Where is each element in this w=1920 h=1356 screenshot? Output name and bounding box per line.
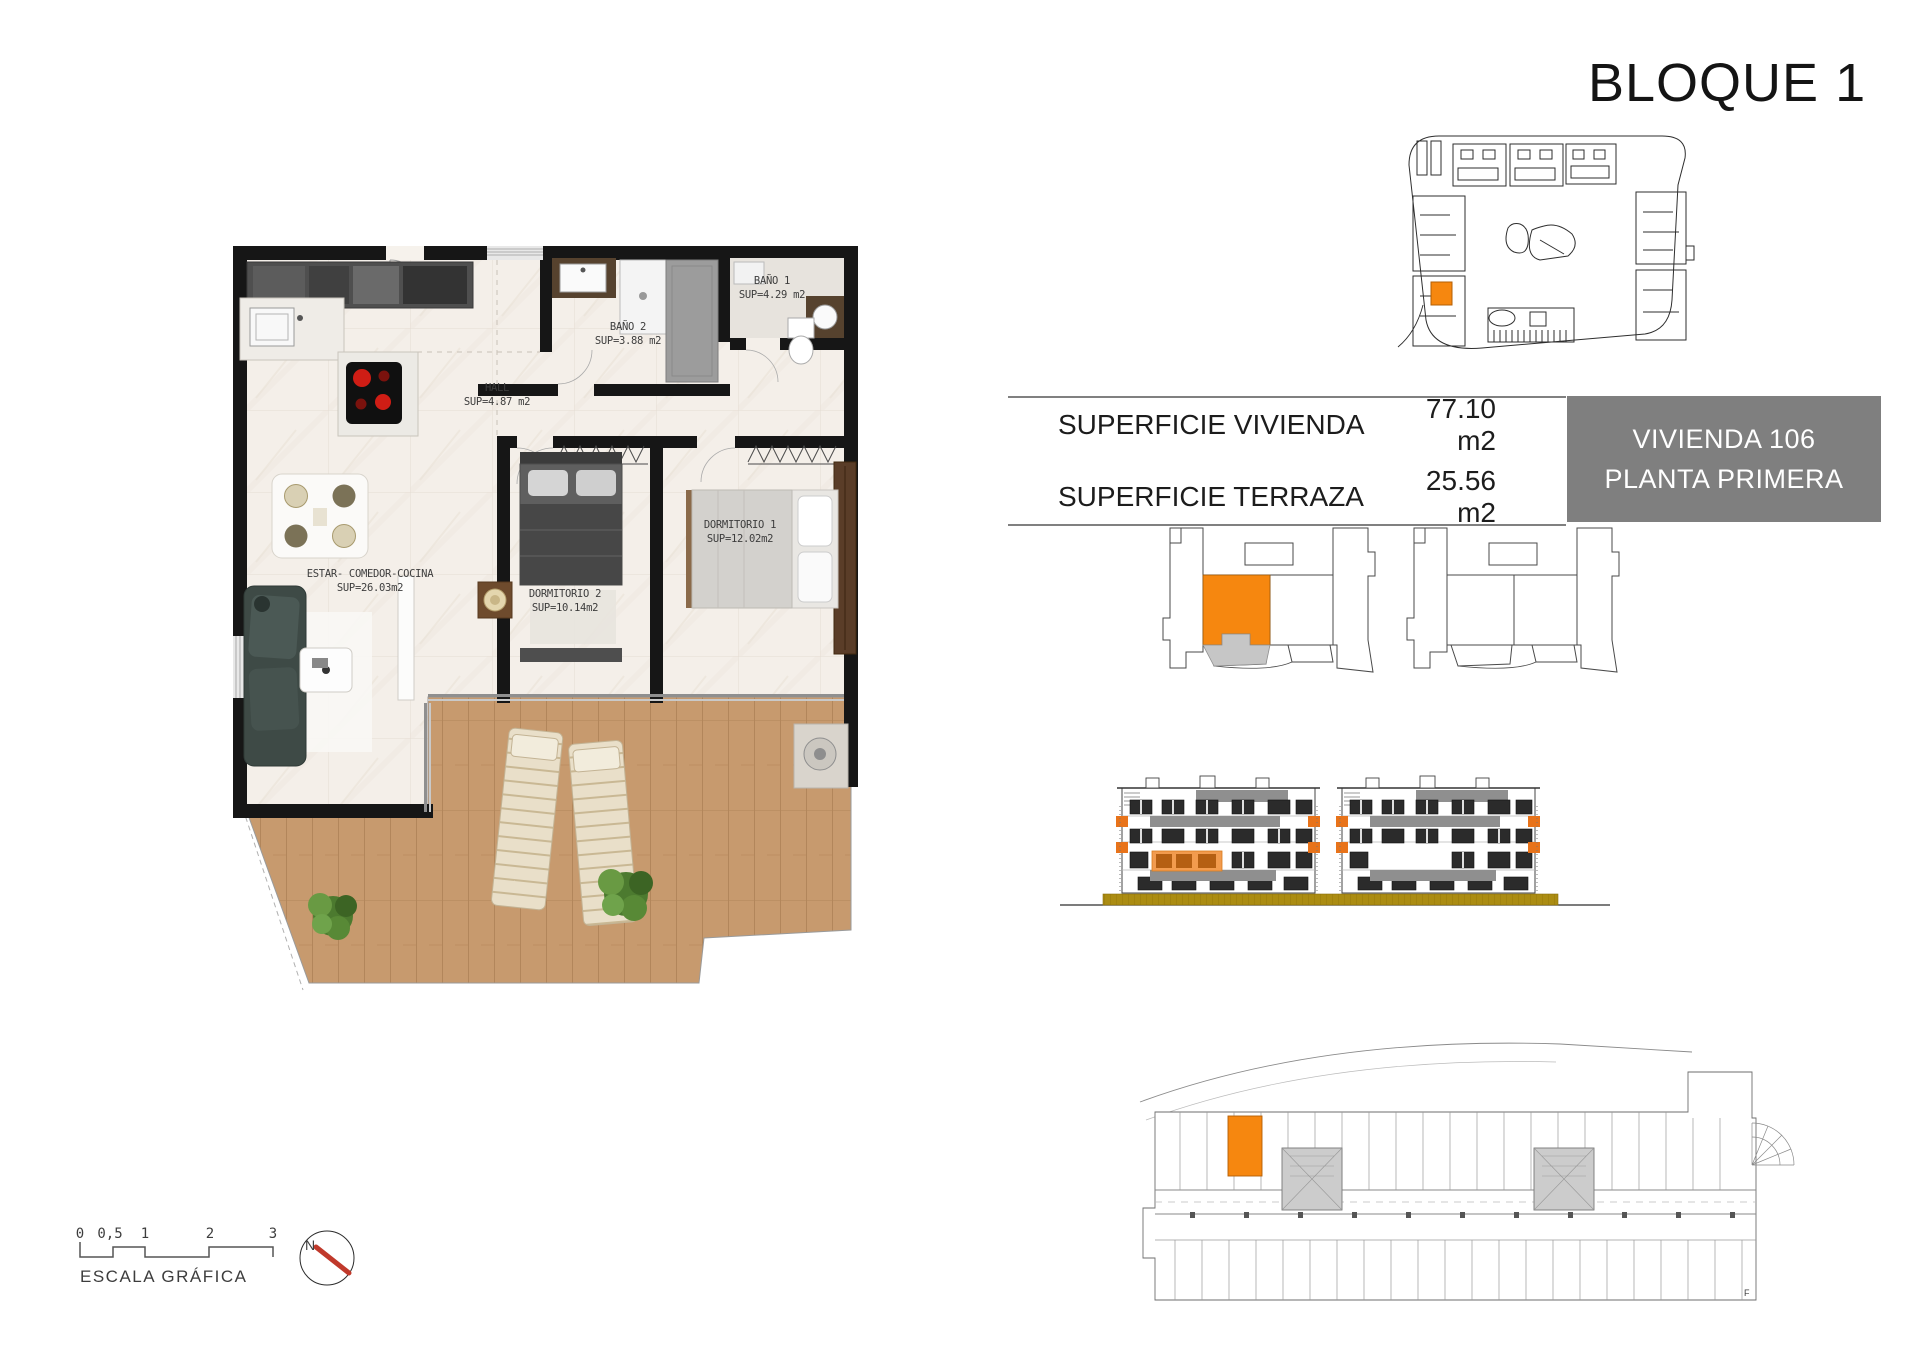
label-bano2: BAÑO 2	[610, 320, 646, 333]
scale-tick-05: 0,5	[97, 1226, 122, 1242]
surface-terraza-label: SUPERFICIE TERRAZA	[1058, 481, 1388, 513]
scale-tick-1: 1	[141, 1226, 149, 1242]
floor-plate-diagram	[1163, 528, 1619, 672]
svg-text:SUP=12.02m2: SUP=12.02m2	[707, 533, 773, 545]
parking-highlight-storage	[1228, 1116, 1262, 1176]
label-hall: HALL	[485, 382, 509, 394]
shower	[666, 260, 718, 382]
compass: N	[300, 1231, 354, 1285]
surface-vivienda-value: 77.10 m2	[1388, 393, 1496, 457]
compass-needle	[316, 1247, 349, 1273]
tv-unit	[398, 576, 414, 700]
scale-tick-3: 3	[269, 1226, 277, 1242]
surface-vivienda-label: SUPERFICIE VIVIENDA	[1058, 409, 1388, 441]
unit-number: VIVIENDA 106	[1632, 424, 1815, 455]
dining-table	[272, 474, 368, 558]
site-highlight-unit	[1431, 282, 1452, 305]
scale-caption: ESCALA GRÁFICA	[80, 1267, 247, 1286]
plan-sheet: { "title": "BLOQUE 1", "info_table": { "…	[0, 0, 1920, 1356]
label-dormitorio1: DORMITORIO 1	[704, 519, 776, 531]
elevation-highlight-flat	[1152, 851, 1222, 871]
elevation-ground-strip	[1103, 894, 1558, 905]
parking-corner-label: F	[1744, 1288, 1750, 1298]
parking-plan: F	[1140, 1043, 1794, 1300]
scale-tick-0: 0	[76, 1226, 84, 1242]
label-estar: ESTAR- COMEDOR-COCINA	[307, 568, 434, 580]
page-title: BLOQUE 1	[1588, 52, 1866, 114]
elevations	[1060, 776, 1610, 905]
svg-text:SUP=26.03m2: SUP=26.03m2	[337, 582, 403, 594]
apartment-floor-plan: ESTAR- COMEDOR-COCINA SUP=26.03m2 DORMIT…	[233, 246, 858, 990]
parking-ramp-fan	[1752, 1123, 1794, 1165]
unit-identity-box: VIVIENDA 106 PLANTA PRIMERA	[1567, 396, 1881, 522]
svg-text:SUP=3.88 m2: SUP=3.88 m2	[595, 335, 661, 347]
svg-text:SUP=10.14m2: SUP=10.14m2	[532, 602, 598, 614]
plant	[598, 869, 653, 921]
label-bano1: BAÑO 1	[754, 274, 790, 287]
outdoor-shower	[794, 724, 848, 788]
surface-terraza-value: 25.56 m2	[1388, 465, 1496, 529]
svg-text:SUP=4.29 m2: SUP=4.29 m2	[739, 289, 805, 301]
stair-core	[1534, 1148, 1594, 1210]
table-row: SUPERFICIE VIVIENDA 77.10 m2	[1008, 393, 1566, 457]
unit-floor: PLANTA PRIMERA	[1604, 464, 1843, 495]
elevation-left-building	[1116, 776, 1320, 893]
stair-core	[1282, 1148, 1342, 1210]
site-plan	[1398, 136, 1694, 348]
label-dormitorio2: DORMITORIO 2	[529, 588, 601, 600]
surface-table: SUPERFICIE VIVIENDA 77.10 m2 SUPERFICIE …	[1008, 396, 1566, 526]
sheet-canvas: ESTAR- COMEDOR-COCINA SUP=26.03m2 DORMIT…	[0, 0, 1920, 1356]
svg-text:SUP=4.87 m2: SUP=4.87 m2	[464, 396, 530, 408]
scale-bar: 0 0,5 1 2 3 ESCALA GRÁFICA	[76, 1226, 277, 1286]
elevation-right-building	[1336, 776, 1540, 893]
table-row: SUPERFICIE TERRAZA 25.56 m2	[1008, 465, 1566, 529]
cooktop	[346, 362, 402, 424]
scale-tick-2: 2	[206, 1226, 214, 1242]
compass-north-label: N	[305, 1237, 315, 1253]
